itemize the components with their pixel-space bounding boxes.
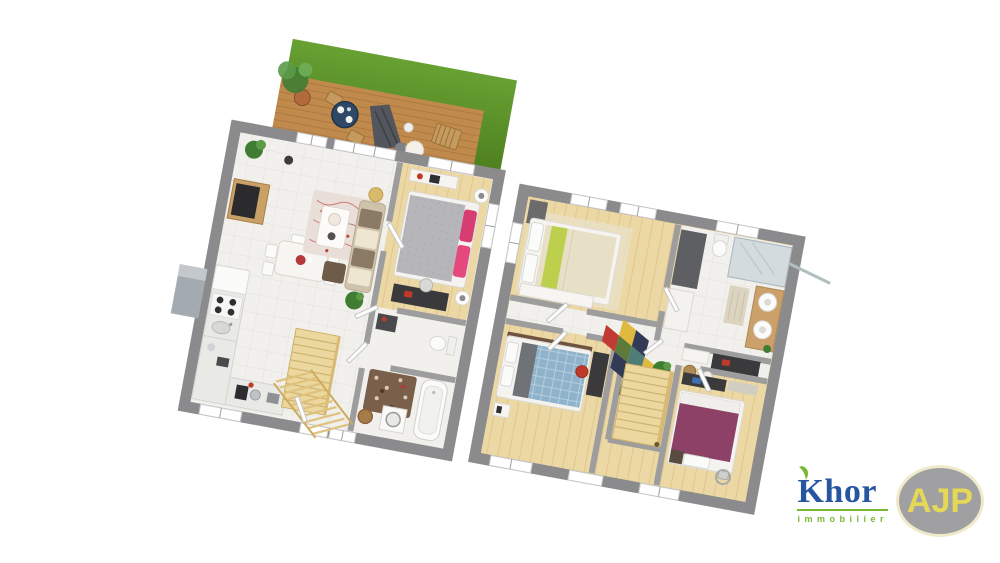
logo-rule	[797, 509, 888, 511]
leaf-icon	[799, 465, 811, 481]
brand-subtitle: immobilier	[797, 514, 888, 524]
floor-plan-image: Khor immobilier AJP	[0, 0, 1000, 563]
ajp-badge: AJP	[896, 465, 984, 537]
tv-unit	[227, 179, 270, 225]
khor-immobilier-logo: Khor immobilier AJP	[797, 465, 984, 537]
ajp-badge-text: AJP	[907, 482, 973, 521]
khor-wordmark-block: Khor immobilier	[797, 478, 888, 524]
brand-wordmark: Khor	[797, 478, 876, 507]
upper-floor-plan	[469, 184, 838, 520]
ground-floor-plan	[153, 26, 522, 463]
